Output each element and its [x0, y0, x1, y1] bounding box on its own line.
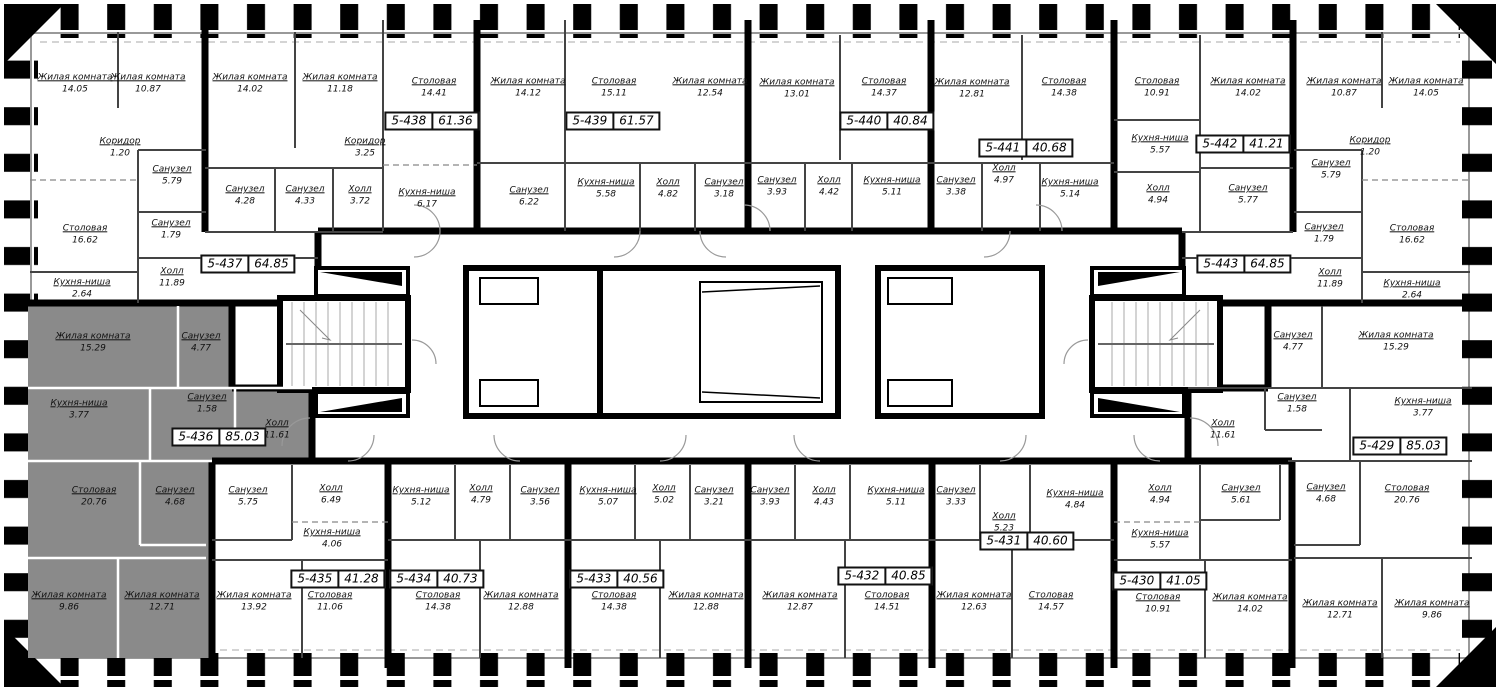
room-label: Кухня-ниша4.84 — [1046, 488, 1103, 511]
room-label: Кухня-ниша5.14 — [1041, 177, 1098, 200]
room-label: Жилая комната12.88 — [484, 590, 559, 613]
room-label: Жилая комната12.71 — [1303, 598, 1378, 621]
apartment-tag-5-433[interactable]: 5-43340.56 — [569, 570, 664, 589]
room-label: Кухня-ниша5.58 — [577, 177, 634, 200]
apartment-tag-5-440[interactable]: 5-44040.84 — [839, 112, 934, 131]
apartment-tag-5-439[interactable]: 5-43961.57 — [565, 112, 660, 131]
room-label: Жилая комната14.12 — [491, 76, 566, 99]
apartment-tag-5-429[interactable]: 5-42985.03 — [1352, 437, 1447, 456]
room-label: Столовая10.91 — [1135, 76, 1180, 99]
room-label: Кухня-ниша3.77 — [1394, 396, 1451, 419]
room-label: Санузел4.33 — [285, 184, 324, 207]
room-label: Жилая комната15.29 — [1359, 330, 1434, 353]
room-label: Санузел3.21 — [694, 485, 733, 508]
room-label: Холл4.79 — [469, 483, 492, 506]
room-label: Столовая14.38 — [1042, 76, 1087, 99]
apartment-tag-5-438[interactable]: 5-43861.36 — [384, 112, 479, 131]
room-label: Холл11.89 — [1317, 267, 1343, 290]
room-label: Столовая14.38 — [592, 590, 637, 613]
room-label: Столовая14.41 — [412, 76, 457, 99]
room-label: Санузел4.77 — [1273, 330, 1312, 353]
room-label: Столовая10.91 — [1136, 592, 1181, 615]
apartment-tag-5-437[interactable]: 5-43764.85 — [200, 255, 295, 274]
room-label: Холл11.61 — [264, 418, 290, 441]
room-label: Кухня-ниша2.64 — [53, 277, 110, 300]
room-label: Кухня-ниша3.77 — [50, 398, 107, 421]
room-label: Жилая комната12.71 — [125, 590, 200, 613]
room-label: Санузел5.61 — [1221, 483, 1260, 506]
apartment-tag-5-442[interactable]: 5-44241.21 — [1195, 135, 1290, 154]
room-label: Холл4.43 — [812, 485, 835, 508]
room-label: Кухня-ниша5.11 — [867, 485, 924, 508]
room-label: Жилая комната11.18 — [303, 72, 378, 95]
room-label: Холл4.94 — [1146, 183, 1169, 206]
apartment-tag-5-431[interactable]: 5-43140.60 — [979, 532, 1074, 551]
room-label: Санузел3.93 — [750, 485, 789, 508]
room-label: Санузел4.68 — [1306, 482, 1345, 505]
room-label: Столовая11.06 — [308, 590, 353, 613]
room-label: Жилая комната14.02 — [213, 72, 288, 95]
room-label: Санузел5.75 — [228, 485, 267, 508]
room-label: Столовая14.38 — [416, 590, 461, 613]
room-label: Холл4.94 — [1148, 483, 1171, 506]
apartment-tag-5-430[interactable]: 5-43041.05 — [1112, 572, 1207, 591]
room-label: Санузел3.56 — [520, 485, 559, 508]
apartment-tag-5-435[interactable]: 5-43541.28 — [290, 570, 385, 589]
room-label: Жилая комната12.88 — [669, 590, 744, 613]
room-label: Жилая комната14.05 — [1389, 76, 1464, 99]
room-label: Коридор1.20 — [1350, 135, 1391, 158]
room-label: Жилая комната13.92 — [217, 590, 292, 613]
apartment-tag-5-432[interactable]: 5-43240.85 — [837, 567, 932, 586]
room-label: Санузел4.68 — [155, 485, 194, 508]
room-label: Санузел3.33 — [936, 485, 975, 508]
room-label: Санузел3.93 — [757, 175, 796, 198]
room-label: Холл6.49 — [319, 483, 342, 506]
room-label: Столовая15.11 — [592, 76, 637, 99]
room-label: Столовая20.76 — [1385, 483, 1430, 506]
apartment-tag-5-443[interactable]: 5-44364.85 — [1196, 255, 1291, 274]
room-label: Санузел1.58 — [1277, 392, 1316, 415]
room-label: Жилая комната10.87 — [1307, 76, 1382, 99]
room-label: Санузел3.18 — [704, 177, 743, 200]
room-label: Санузел1.79 — [1304, 222, 1343, 245]
room-label: Кухня-ниша6.17 — [398, 187, 455, 210]
room-label: Жилая комната12.54 — [673, 76, 748, 99]
room-label: Холл11.61 — [1210, 418, 1236, 441]
room-label: Жилая комната14.02 — [1211, 76, 1286, 99]
room-label: Жилая комната13.01 — [760, 77, 835, 100]
room-label: Столовая14.51 — [865, 590, 910, 613]
room-label: Санузел5.79 — [1311, 158, 1350, 181]
room-label: Кухня-ниша5.12 — [392, 485, 449, 508]
room-label: Столовая16.62 — [63, 223, 108, 246]
room-label: Холл4.97 — [992, 163, 1015, 186]
room-label: Кухня-ниша4.06 — [303, 527, 360, 550]
room-label: Санузел1.79 — [151, 218, 190, 241]
room-label: Холл4.42 — [817, 175, 840, 198]
apartment-tag-5-436[interactable]: 5-43685.03 — [171, 428, 266, 447]
room-label: Жилая комната9.86 — [32, 590, 107, 613]
room-label: Холл5.02 — [652, 483, 675, 506]
room-label: Кухня-ниша5.57 — [1131, 528, 1188, 551]
room-label: Санузел5.77 — [1228, 183, 1267, 206]
room-label: Жилая комната9.86 — [1395, 598, 1470, 621]
room-label: Санузел3.38 — [936, 175, 975, 198]
room-label: Кухня-ниша5.57 — [1131, 133, 1188, 156]
room-label: Кухня-ниша2.64 — [1383, 278, 1440, 301]
room-label: Холл4.82 — [656, 177, 679, 200]
room-label: Жилая комната12.81 — [935, 77, 1010, 100]
apartment-tag-5-441[interactable]: 5-44140.68 — [978, 139, 1073, 158]
room-label: Санузел5.79 — [152, 164, 191, 187]
room-label: Холл3.72 — [348, 184, 371, 207]
room-label: Коридор1.20 — [100, 136, 141, 159]
room-label: Жилая комната14.05 — [38, 72, 113, 95]
room-label: Санузел4.28 — [225, 184, 264, 207]
floor-plan: Жилая комната14.05 Жилая комната10.87 Ко… — [0, 0, 1500, 691]
room-label: Санузел4.77 — [181, 331, 220, 354]
room-label: Жилая комната15.29 — [56, 331, 131, 354]
room-label: Столовая14.57 — [1029, 590, 1074, 613]
room-label: Кухня-ниша5.07 — [579, 485, 636, 508]
room-label: Коридор3.25 — [345, 136, 386, 159]
room-label: Санузел1.58 — [187, 392, 226, 415]
room-label: Столовая14.37 — [862, 76, 907, 99]
room-label: Столовая20.76 — [72, 485, 117, 508]
room-label: Жилая комната10.87 — [111, 72, 186, 95]
room-label: Жилая комната14.02 — [1213, 592, 1288, 615]
room-label: Санузел6.22 — [509, 185, 548, 208]
room-label: Жилая комната12.63 — [937, 590, 1012, 613]
room-label: Столовая16.62 — [1390, 223, 1435, 246]
room-label: Кухня-ниша5.11 — [863, 175, 920, 198]
apartment-tag-5-434[interactable]: 5-43440.73 — [389, 570, 484, 589]
room-label: Жилая комната12.87 — [763, 590, 838, 613]
room-label: Холл11.89 — [159, 266, 185, 289]
